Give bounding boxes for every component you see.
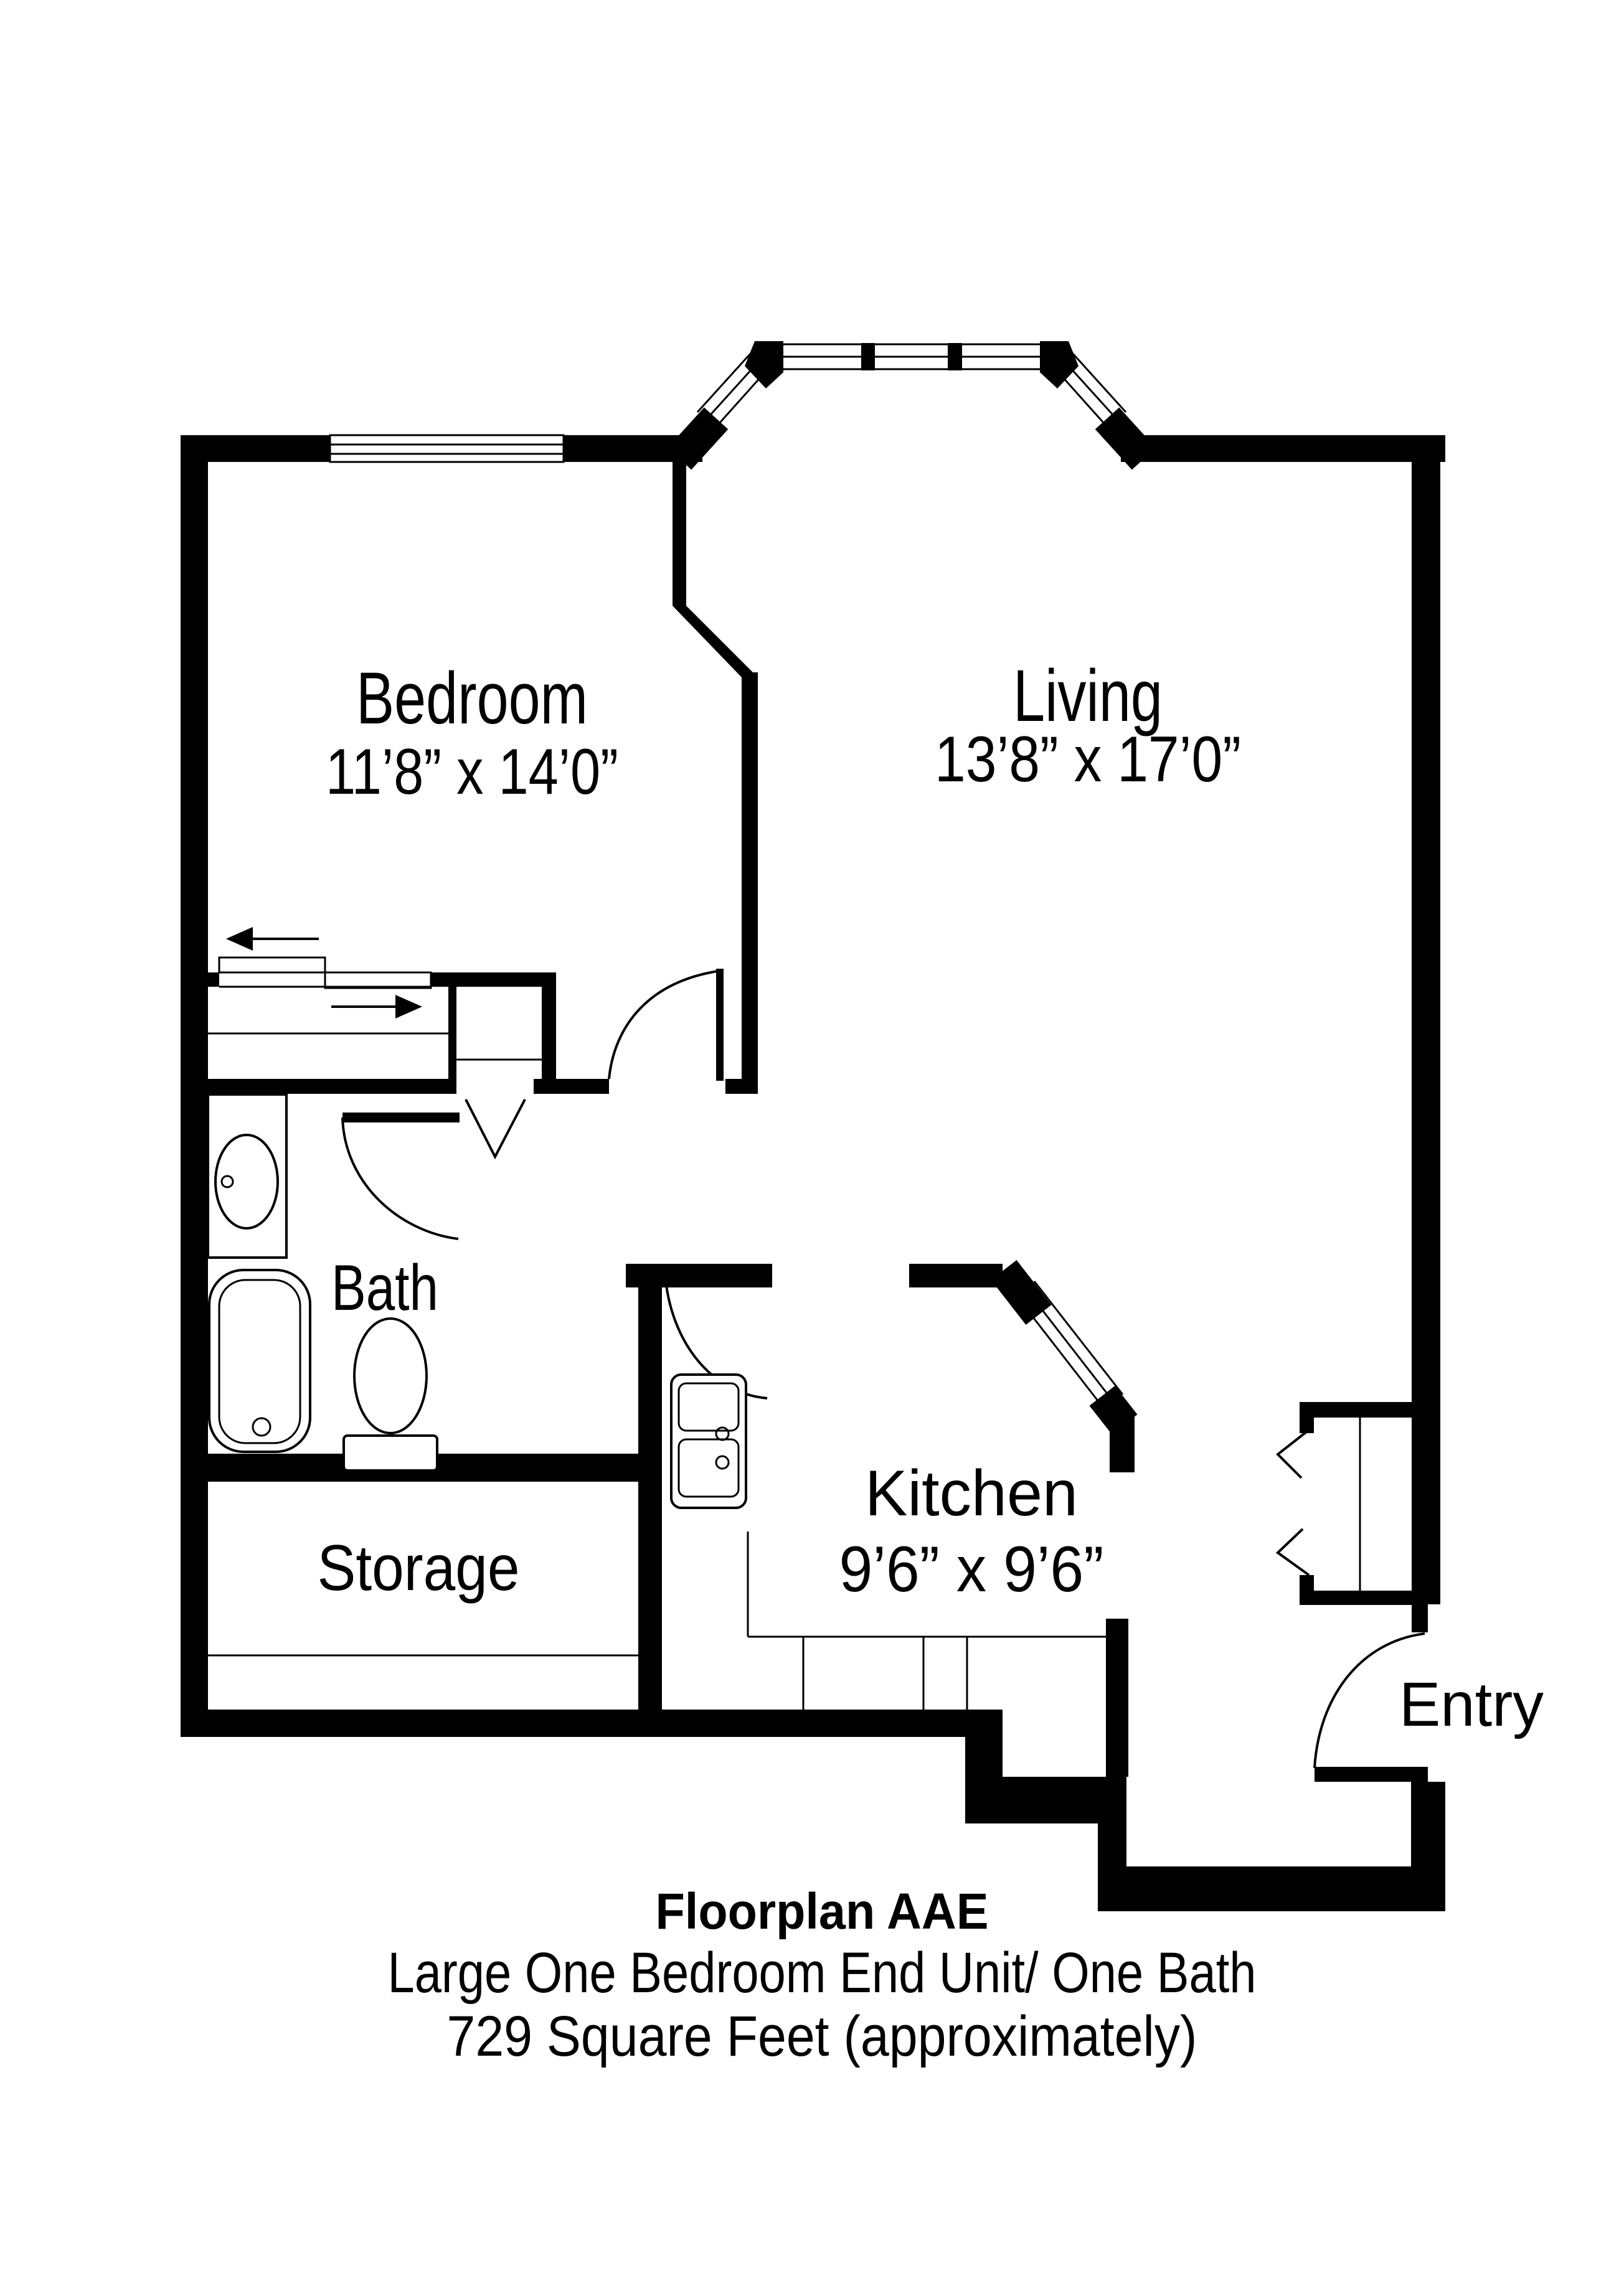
wall-bottom-main [181, 1710, 987, 1737]
caption-line2: Large One Bedroom End Unit/ One Bath [388, 1941, 1257, 2005]
bedroom-south-wall-block-left [204, 972, 219, 987]
linen-closet-right-wall [542, 972, 556, 1079]
wall-top-a [181, 435, 330, 462]
bath-door-leaf [342, 1113, 460, 1122]
pass-through-window [1004, 1270, 1125, 1424]
arrow-right-head [395, 995, 422, 1019]
room-label-bedroom: Bedroom [356, 657, 588, 740]
wall-top-c [1133, 435, 1445, 462]
bedroom-door-swing [609, 971, 717, 1079]
closet-front-panel [325, 972, 431, 988]
entry-alcove-right [1411, 1782, 1445, 1911]
closet-back-panel [219, 957, 325, 972]
doors [342, 969, 1428, 1782]
vanity-sink [215, 1135, 278, 1228]
outer-walls [181, 435, 1445, 1911]
room-label-storage: Storage [318, 1532, 520, 1604]
bedroom-door-leaf [716, 969, 724, 1081]
room-dims-living: 13’8” x 17’0” [935, 723, 1241, 796]
bath-north-wall [181, 1079, 450, 1094]
room-label-bath: Bath [331, 1252, 438, 1324]
bay-corner-left-top [745, 341, 783, 388]
kitchen-north-wall [626, 1264, 772, 1287]
room-dims-bedroom: 11’8” x 14’0” [326, 736, 618, 808]
entry-closet-bottom-wall [1300, 1591, 1412, 1605]
arrow-left-head [226, 927, 253, 951]
bath-door-swing [342, 1117, 458, 1239]
wall-right-stub [1412, 1604, 1428, 1632]
entry-closet-bifold-chevron-2 [1278, 1529, 1309, 1575]
wall-right [1412, 435, 1440, 1604]
entry-alcove-bottom [1126, 1866, 1445, 1911]
bedroom-window [330, 435, 564, 462]
bay-corner-left-low [679, 418, 716, 459]
bifold-door-chevron [466, 1099, 525, 1157]
closet-right-wall [448, 972, 456, 1094]
floorplan-canvas: Bedroom 11’8” x 14’0” Living 13’8” x 17’… [0, 0, 1624, 2296]
bay-mullion-2 [948, 343, 962, 370]
bay-top-window [781, 343, 1042, 370]
entry-closet-top-wall [1300, 1402, 1412, 1418]
entry-closet [1278, 1402, 1412, 1605]
room-label-entry: Entry [1399, 1670, 1544, 1739]
bay-mullion-1 [861, 343, 875, 370]
entry-door-leaf [1315, 1767, 1428, 1782]
caption-title: Floorplan AAE [656, 1883, 989, 1940]
bay-corner-right-top [1040, 341, 1079, 388]
room-label-kitchen: Kitchen [865, 1457, 1078, 1530]
caption-line3: 729 Square Feet (approximately) [447, 2005, 1197, 2068]
bathtub [209, 1270, 310, 1452]
bay-window [661, 341, 1158, 462]
toilet-tank [344, 1436, 437, 1470]
kitchen-west-wall [638, 1287, 662, 1710]
room-dims-kitchen: 9’6” x 9’6” [839, 1533, 1104, 1606]
bedroom-east-wall-lower [742, 672, 758, 1079]
kitchen-north-wall-2 [909, 1264, 1003, 1287]
bedroom-east-wall-jog [673, 606, 758, 677]
bedroom-east-wall-upper [673, 462, 686, 606]
kitchen-entry-divider [1106, 1619, 1128, 1777]
entry-alcove-left [1098, 1777, 1126, 1911]
entry-closet-bifold-chevron-1 [1278, 1432, 1306, 1478]
bedroom-door-stub [725, 1079, 758, 1094]
entry-closet-top-block [1300, 1402, 1314, 1433]
entry-closet-bottom-block [1300, 1575, 1314, 1605]
floorplan-page: Bedroom 11’8” x 14’0” Living 13’8” x 17’… [0, 0, 1624, 2296]
hall-north-wall [534, 1079, 609, 1094]
toilet-bowl [354, 1319, 427, 1433]
